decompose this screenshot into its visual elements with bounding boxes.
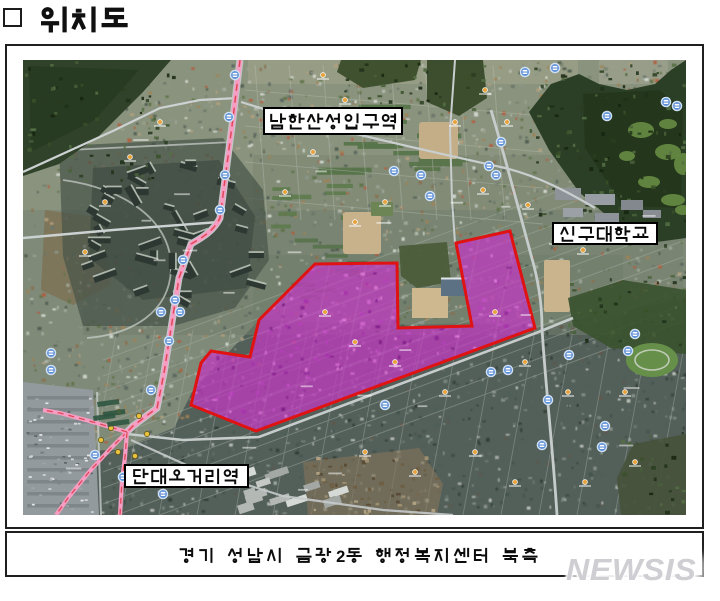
- svg-text:2: 2: [336, 548, 345, 566]
